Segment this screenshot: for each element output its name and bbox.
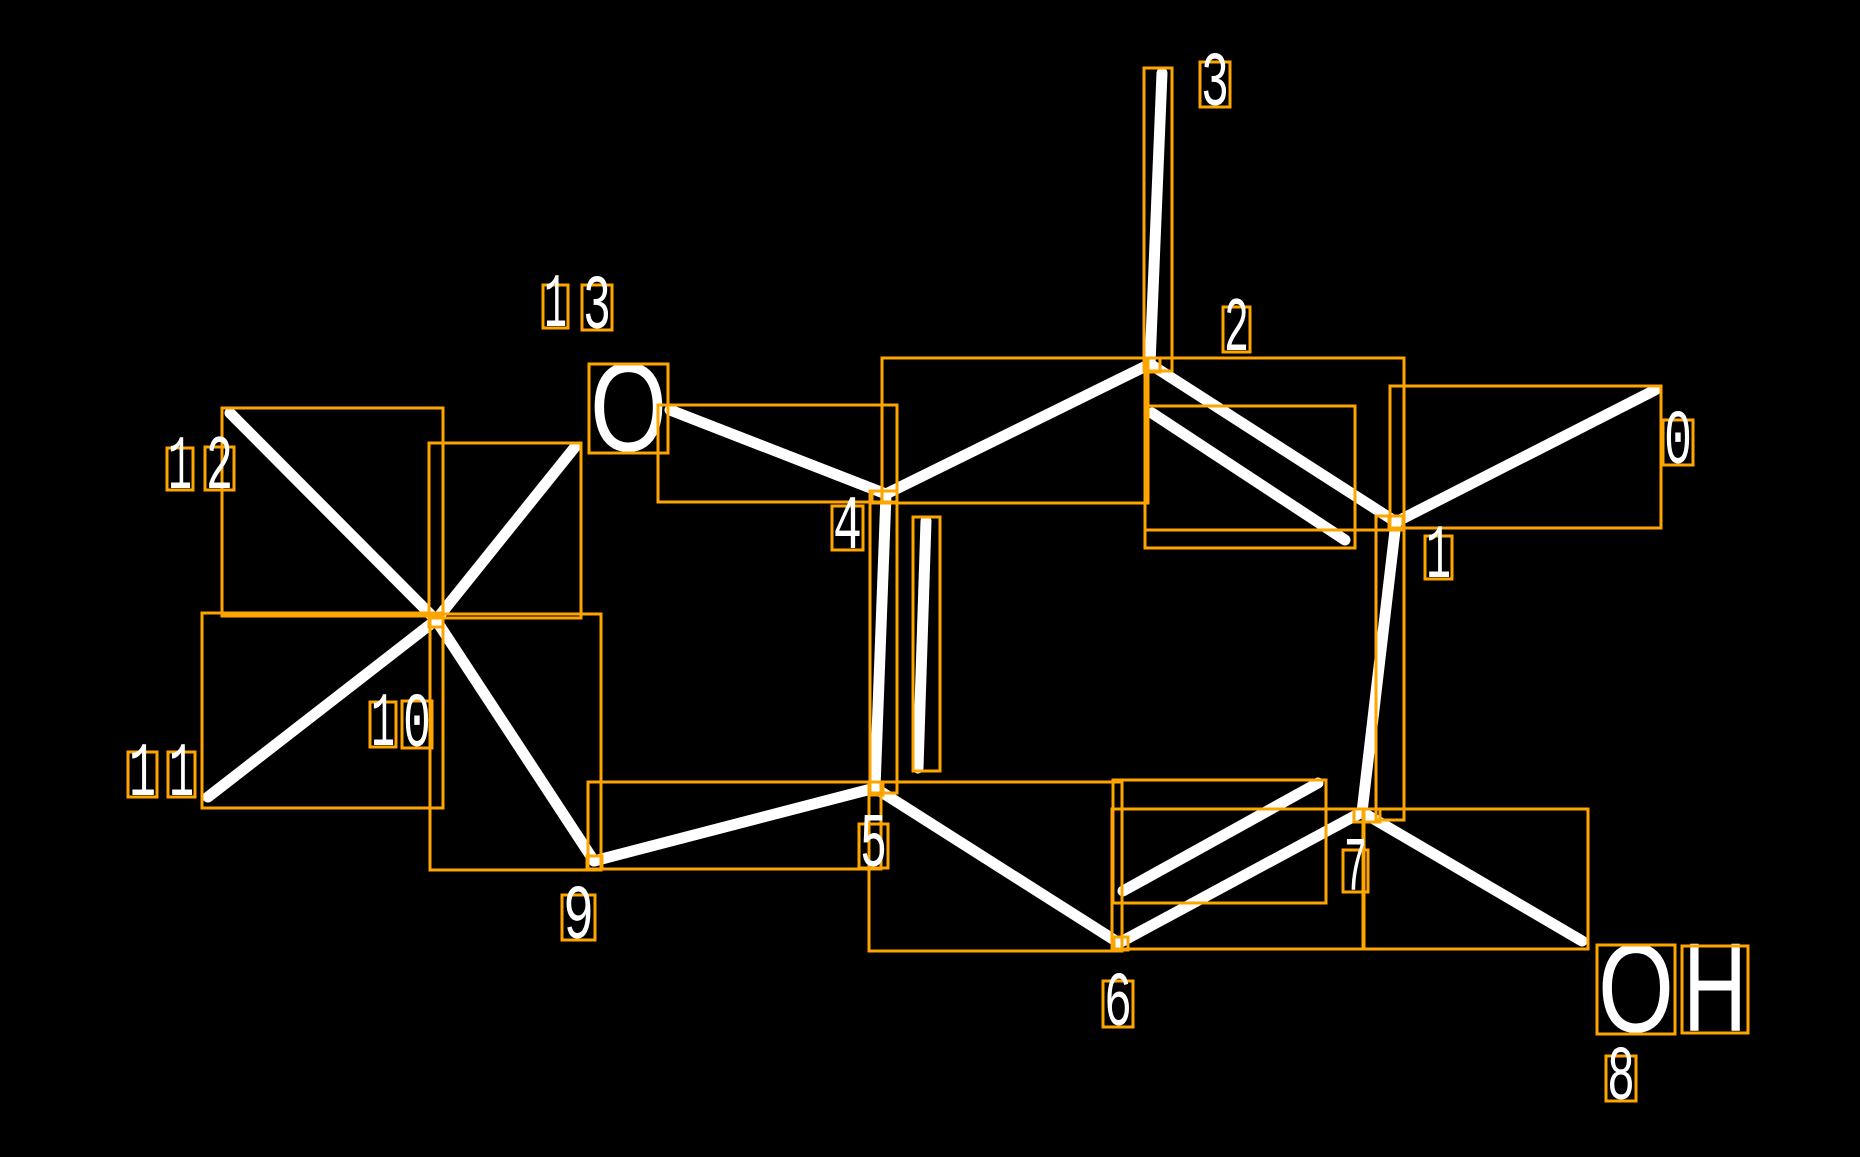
- molecule-annotation-canvas: OOH012345678910111213: [0, 0, 1860, 1157]
- index-label-digit-5: 5: [860, 803, 887, 890]
- index-label-digit-6: 6: [1104, 962, 1132, 1049]
- index-label-digit-13-b: 3: [583, 265, 611, 352]
- index-label-digit-1: 1: [1426, 514, 1451, 601]
- index-label-digit-11-b: 1: [169, 732, 194, 819]
- index-label-digit-13-a: 1: [544, 263, 567, 350]
- screenshot-root: OOH012345678910111213: [0, 0, 1860, 1157]
- atom-symbol-hydroxyl-h: H: [1683, 917, 1747, 1058]
- index-label-digit-0: 0: [1664, 400, 1692, 487]
- index-label-digit-7: 7: [1344, 827, 1367, 914]
- index-label-digit-8: 8: [1607, 1036, 1635, 1123]
- index-label-digit-9: 9: [563, 875, 594, 962]
- index-label-digit-11-a: 1: [129, 732, 156, 819]
- index-label-digit-10-b: 0: [403, 683, 431, 770]
- index-label-digit-4: 4: [833, 485, 862, 572]
- index-label-digit-12-a: 1: [168, 425, 192, 512]
- index-label-digit-12-b: 2: [206, 425, 233, 512]
- index-label-digit-10-a: 1: [371, 682, 395, 769]
- index-label-digit-3: 3: [1201, 42, 1229, 129]
- index-label-digit-2: 2: [1224, 287, 1249, 374]
- atom-symbol-ether-oxygen: O: [590, 337, 667, 478]
- background: [0, 0, 1860, 1157]
